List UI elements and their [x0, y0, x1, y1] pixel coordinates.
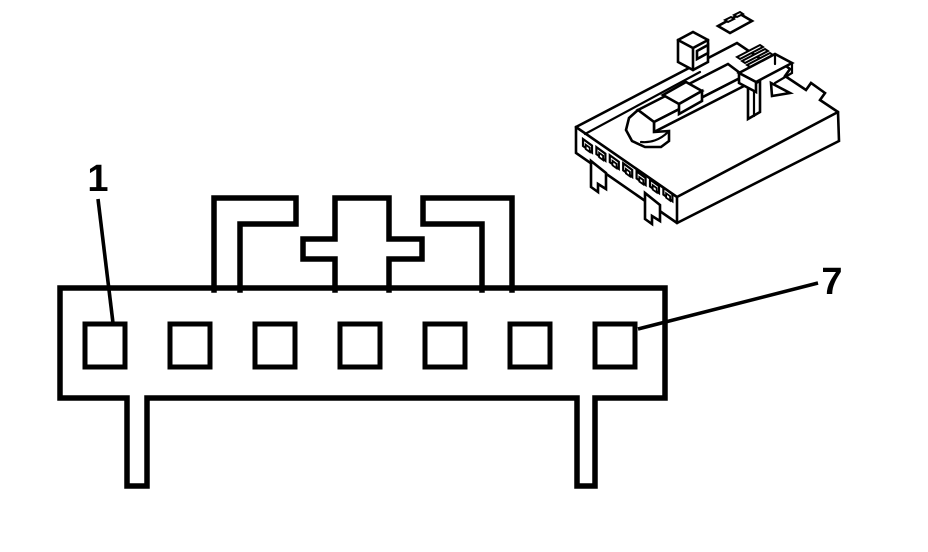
terminal-cavity-5 — [425, 324, 465, 367]
diagram-canvas: 1 7 — [0, 0, 928, 552]
keying-tower-left — [214, 198, 296, 290]
connector-front-view — [60, 198, 665, 486]
connector-iso-view — [576, 12, 839, 224]
terminal-cavity-6 — [510, 324, 550, 367]
front-view-terminals — [85, 324, 635, 367]
terminal-cavity-4 — [340, 324, 380, 367]
pin-label-1: 1 — [87, 158, 108, 200]
terminal-cavity-7 — [595, 324, 635, 367]
pin-label-7: 7 — [821, 261, 842, 303]
keying-tower-right — [423, 198, 512, 290]
leader-line-1 — [98, 199, 113, 323]
terminal-cavity-3 — [255, 324, 295, 367]
connector-body-outline — [60, 288, 665, 486]
terminal-cavity-2 — [170, 324, 210, 367]
connector-diagram: 1 7 — [0, 0, 928, 552]
terminal-cavity-1 — [85, 324, 125, 367]
keying-cross — [303, 198, 422, 290]
